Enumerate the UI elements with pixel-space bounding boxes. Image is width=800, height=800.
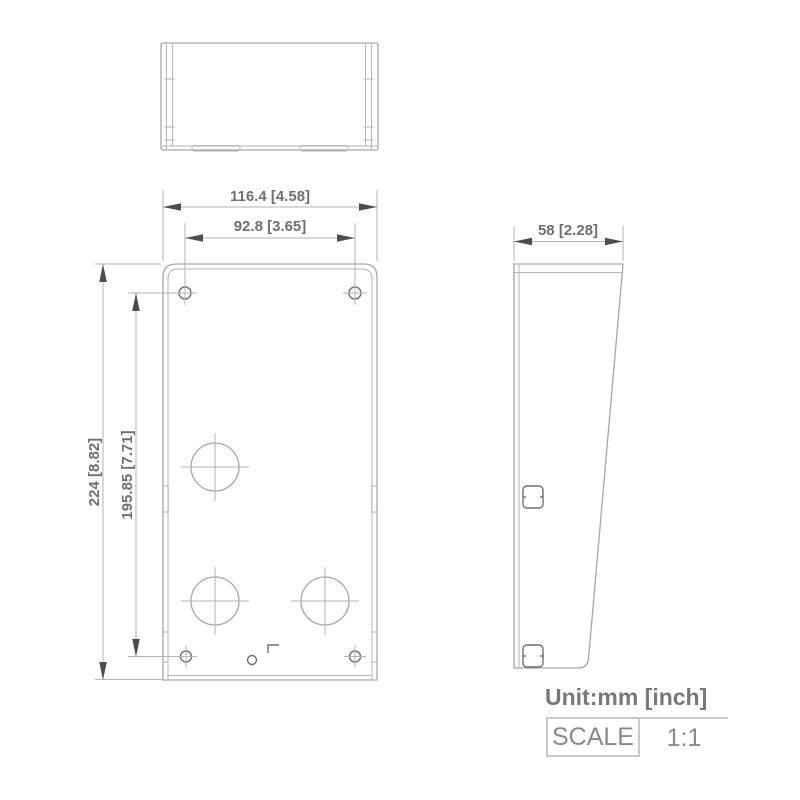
arrowhead [185,234,203,242]
scale-table-value-cell: 1:1 [640,719,728,757]
side-view-outline [514,264,623,668]
small-hole [248,656,257,665]
top-view [161,43,378,151]
side-view [514,264,623,668]
top-view-outline [161,43,378,150]
arrowhead [337,234,355,242]
cable-hole-lower-left [181,567,249,635]
side-knockout-lower [523,645,543,667]
mount-hole-bottom-right [344,646,366,668]
scale-table-label-cell: SCALE [546,719,640,757]
arrowhead [132,639,140,657]
dim-label-overall-height: 224 [8.82] [87,402,103,542]
arrowhead [132,293,140,311]
scale-table: SCALE 1:1 [546,717,728,757]
side-knockout-upper [523,486,543,508]
unit-note: Unit:mm [inch] [545,684,730,711]
cable-hole-lower-right [291,567,359,635]
dim-label-hole-spacing-width: 92.8 [3.65] [170,219,370,235]
cable-hole-upper [181,433,249,501]
dim-label-hole-spacing-height: 195.85 [7.71] [120,395,136,555]
arrowhead [99,264,107,282]
technical-drawing-sheet: 116.4 [4.58] 92.8 [3.65] 224 [8.82] 195.… [0,0,800,800]
arrowhead [99,662,107,680]
dim-label-overall-width: 116.4 [4.58] [170,189,370,205]
dim-label-depth: 58 [2.28] [478,223,658,239]
orientation-corner-mark [268,645,279,653]
front-view-outline [163,264,377,680]
front-view [163,264,377,680]
